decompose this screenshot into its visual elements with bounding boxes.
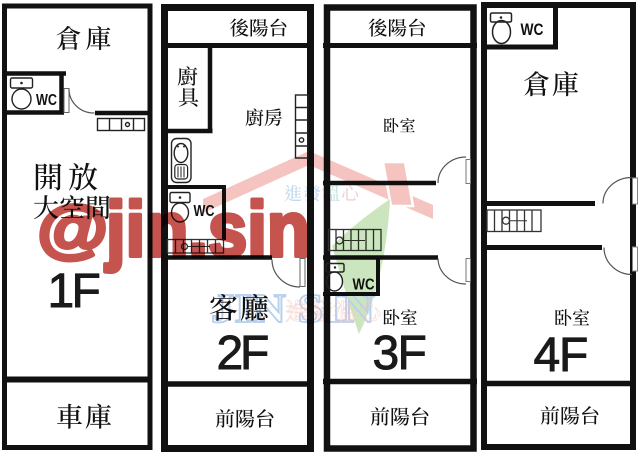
- svg-text:WC: WC: [521, 20, 544, 39]
- svg-text:jin.sin: jin.sin: [104, 185, 310, 273]
- svg-text:F: F: [72, 265, 101, 318]
- svg-text:4: 4: [534, 329, 561, 382]
- svg-text:@: @: [37, 193, 108, 265]
- svg-text:F: F: [240, 327, 269, 380]
- svg-text:3: 3: [373, 327, 400, 380]
- svg-text:1: 1: [48, 265, 75, 318]
- svg-text:WC: WC: [36, 92, 57, 109]
- svg-text:F: F: [559, 329, 588, 382]
- svg-text:F: F: [398, 327, 427, 380]
